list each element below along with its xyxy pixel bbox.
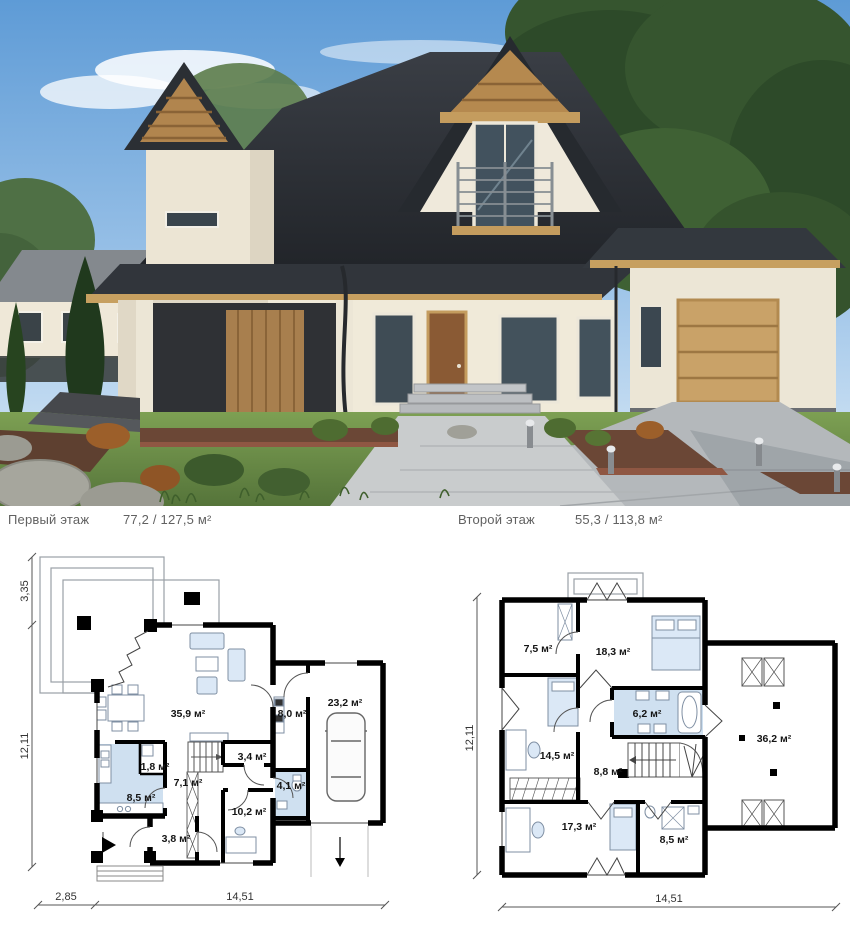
room-area-label: 7,5 м²: [524, 643, 553, 655]
house-render-photo: [0, 0, 850, 506]
armchair: [197, 677, 217, 694]
slit-window: [166, 212, 218, 227]
second-floor-caption: Второй этаж: [458, 512, 535, 527]
room-area-label: 17,3 м²: [562, 821, 597, 833]
terrace-column: [184, 592, 200, 605]
sofa: [190, 633, 224, 649]
entry-steps: [97, 866, 163, 881]
room-area-label: 8,5 м²: [127, 792, 156, 804]
room-area-label: 3,8 м²: [162, 833, 191, 845]
floor2-plan: 7,5 м² 18,3 м² 6,2 м² 14,5 м² 8,8 м² 36,…: [440, 550, 850, 925]
chair: [532, 822, 544, 838]
wall-stub: [91, 810, 103, 822]
drive-arrow: [335, 858, 345, 867]
room-area-label: 36,2 м²: [757, 733, 792, 745]
garage-fascia: [590, 260, 840, 268]
room-area-label: 14,5 м²: [540, 750, 575, 762]
balcony-outline: [568, 573, 643, 600]
first-floor-caption: Первый этаж: [8, 512, 89, 527]
desk: [226, 837, 256, 853]
front-steps: [400, 384, 540, 413]
room-area-label: 7,1 м²: [174, 777, 203, 789]
sink: [656, 691, 669, 700]
wardrobe-strip: [510, 778, 580, 800]
room-area-label: 35,9 м²: [171, 708, 206, 720]
garage-side-window: [640, 306, 662, 368]
dim-label: 12,11: [464, 725, 476, 752]
room-area-label: 4,1 м²: [277, 780, 306, 792]
wall-stub: [144, 619, 157, 632]
stairs: [188, 742, 223, 772]
sink: [277, 801, 287, 809]
room-area-label: 23,2 м²: [328, 697, 363, 709]
dim-label: 2,85: [55, 891, 76, 903]
coffee-table: [196, 657, 218, 671]
post: [739, 735, 745, 741]
room-area-label: 6,2 м²: [633, 708, 662, 720]
wall-stub: [144, 851, 156, 863]
tv-bench: [190, 733, 228, 741]
dim-label: 12,11: [20, 733, 31, 760]
dining-table: [108, 695, 144, 721]
page: Первый этаж 77,2 / 127,5 м² Второй этаж …: [0, 0, 850, 935]
desk: [506, 730, 526, 770]
grounds: [0, 384, 850, 506]
chair: [235, 827, 245, 835]
dim-label: 14,51: [226, 891, 254, 903]
desk: [506, 808, 530, 852]
mulch-bed: [140, 428, 398, 444]
room-area-label: 3,4 м²: [238, 751, 267, 763]
washing-machine: [142, 745, 153, 756]
window: [374, 314, 414, 404]
floor1-plan: 35,9 м² 8,0 м² 23,2 м² 1,8 м² 3,4 м² 7,1…: [20, 545, 440, 925]
wall-stub: [91, 851, 103, 863]
room-area-label: 18,3 м²: [596, 646, 631, 658]
dim-label: 3,35: [20, 580, 31, 601]
room-area-label: 8,0 м²: [278, 708, 307, 720]
chimney: [770, 769, 777, 776]
car: [325, 713, 367, 801]
balcony-base: [452, 226, 560, 235]
bathtub: [678, 692, 701, 733]
room-area-label: 10,2 м²: [232, 806, 267, 818]
dim-label: 14,51: [655, 893, 683, 905]
sink: [636, 691, 649, 700]
second-floor-area: 55,3 / 113,8 м²: [575, 512, 663, 527]
entry-arrow: [102, 837, 116, 853]
room-area-label: 8,5 м²: [660, 834, 689, 846]
chimney: [773, 702, 780, 709]
chair: [528, 742, 540, 758]
terrace-column: [77, 616, 91, 630]
first-floor-area: 77,2 / 127,5 м²: [123, 512, 212, 527]
wall-stub: [91, 679, 104, 692]
sink: [688, 806, 699, 814]
room-area-label: 8,8 м²: [594, 766, 623, 778]
sofa: [228, 649, 245, 681]
window: [578, 318, 612, 398]
stairs: [628, 743, 703, 777]
room-area-label: 1,8 м²: [141, 761, 170, 773]
garage-apron: [311, 826, 368, 877]
